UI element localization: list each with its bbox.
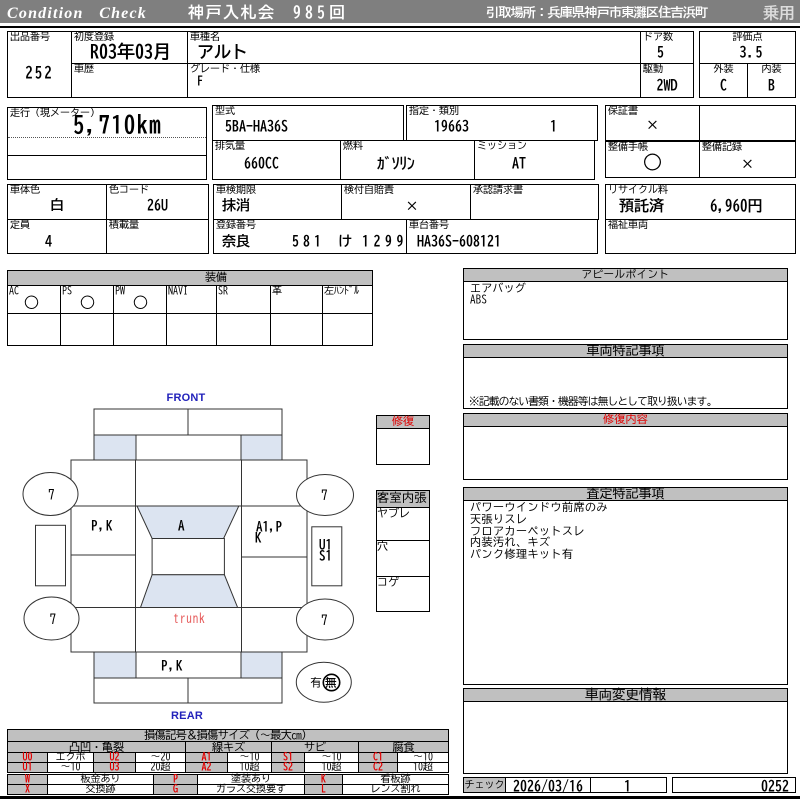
svg-text:A: A [178, 519, 185, 532]
svg-text:P,K: P,K [161, 659, 184, 672]
svg-text:無: 無 [325, 677, 337, 689]
svg-text:有: 有 [311, 678, 322, 689]
svg-text:7: 7 [321, 614, 328, 627]
svg-text:REAR: REAR [171, 710, 203, 722]
svg-text:S1: S1 [319, 549, 332, 562]
svg-text:K: K [255, 531, 262, 544]
svg-text:FRONT: FRONT [167, 392, 206, 404]
svg-text:trunk: trunk [173, 613, 206, 625]
svg-text:7: 7 [48, 488, 55, 501]
svg-text:P,K: P,K [91, 519, 114, 532]
svg-text:7: 7 [50, 613, 57, 626]
svg-text:7: 7 [321, 489, 328, 502]
